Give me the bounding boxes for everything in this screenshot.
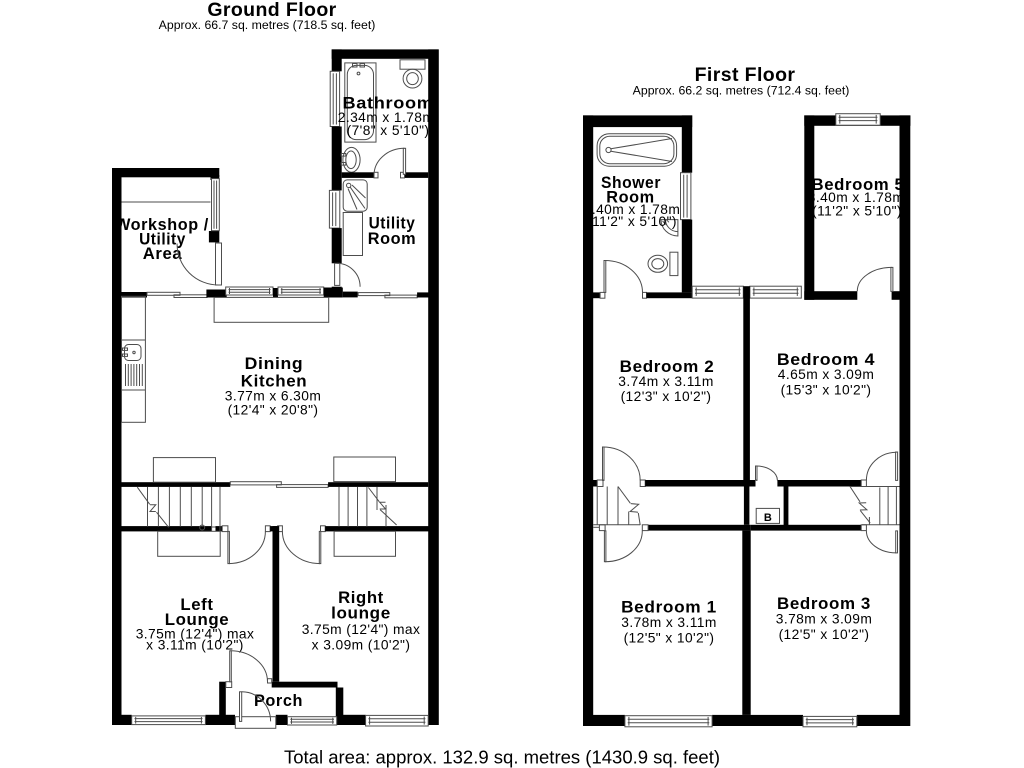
svg-text:(11'2" x 5'10"): (11'2" x 5'10") bbox=[812, 204, 902, 219]
svg-text:(7'8" x 5'10"): (7'8" x 5'10") bbox=[347, 123, 430, 138]
svg-text:3.74m x 3.11m: 3.74m x 3.11m bbox=[618, 374, 713, 389]
svg-text:(15'3" x 10'2"): (15'3" x 10'2") bbox=[781, 382, 872, 397]
svg-text:(12'5" x 10'2"): (12'5" x 10'2") bbox=[624, 630, 715, 645]
svg-text:3.75m (12'4") max: 3.75m (12'4") max bbox=[302, 622, 421, 637]
svg-text:3.77m x 6.30m: 3.77m x 6.30m bbox=[225, 389, 321, 404]
svg-text:Dining: Dining bbox=[245, 355, 304, 373]
svg-text:Porch: Porch bbox=[254, 692, 303, 710]
svg-text:(11'2" x 5'10"): (11'2" x 5'10") bbox=[587, 214, 677, 229]
svg-text:Bedroom 1: Bedroom 1 bbox=[621, 599, 717, 617]
svg-text:lounge: lounge bbox=[331, 605, 391, 623]
svg-text:Approx. 66.7 sq. metres (718.5: Approx. 66.7 sq. metres (718.5 sq. feet) bbox=[159, 18, 376, 32]
svg-text:3.78m x 3.09m: 3.78m x 3.09m bbox=[776, 611, 872, 626]
svg-text:Bedroom 3: Bedroom 3 bbox=[777, 595, 871, 613]
svg-text:x 3.09m (10'2"): x 3.09m (10'2") bbox=[312, 638, 411, 653]
svg-text:3.78m x 3.11m: 3.78m x 3.11m bbox=[621, 615, 716, 630]
svg-text:(12'3" x 10'2"): (12'3" x 10'2") bbox=[621, 389, 712, 404]
svg-text:x 3.11m (10'2"): x 3.11m (10'2") bbox=[146, 638, 244, 653]
svg-text:4.65m x 3.09m: 4.65m x 3.09m bbox=[778, 367, 874, 382]
svg-text:Room: Room bbox=[368, 230, 417, 248]
svg-text:Area: Area bbox=[143, 245, 183, 263]
svg-text:(12'4" x 20'8"): (12'4" x 20'8") bbox=[228, 403, 319, 418]
svg-text:Approx. 66.2 sq. metres (712.4: Approx. 66.2 sq. metres (712.4 sq. feet) bbox=[633, 84, 850, 98]
svg-text:Total area: approx. 132.9 sq.: Total area: approx. 132.9 sq. metres (14… bbox=[284, 747, 720, 768]
svg-text:B: B bbox=[764, 512, 772, 524]
svg-text:(12'5" x 10'2"): (12'5" x 10'2") bbox=[779, 627, 870, 642]
